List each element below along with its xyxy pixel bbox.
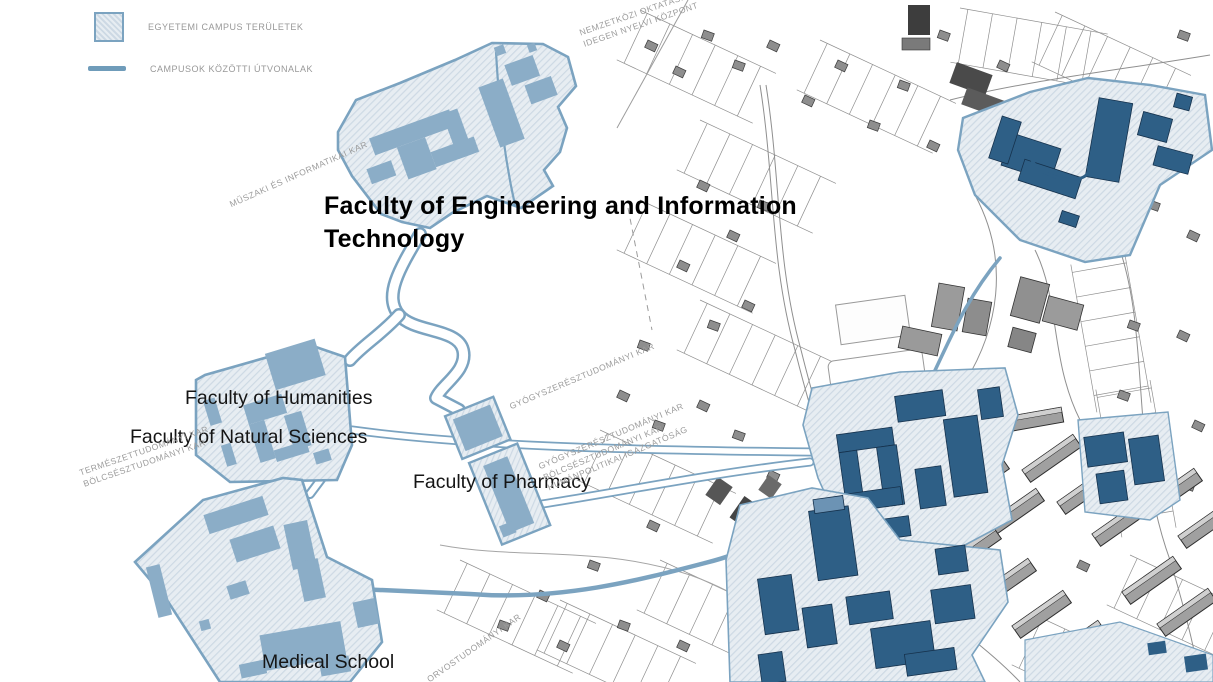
- legend-label: CAMPUSOK KÖZÖTTI ÚTVONALAK: [150, 64, 313, 74]
- campus-area-swatch: [94, 12, 124, 42]
- northeast-campus-area: [958, 78, 1212, 262]
- legend-item-campus-areas: EGYETEMI CAMPUS TERÜLETEK: [94, 12, 313, 42]
- campus-map-page: EGYETEMI CAMPUS TERÜLETEK CAMPUSOK KÖZÖT…: [0, 0, 1213, 682]
- humanities-natsci-campus-area: [195, 339, 352, 491]
- legend: EGYETEMI CAMPUS TERÜLETEK CAMPUSOK KÖZÖT…: [94, 12, 313, 96]
- campus-map: [0, 0, 1213, 682]
- southeast-campus-patch: [1025, 622, 1213, 682]
- label-faculty-engineering: Faculty of Engineering and Information T…: [324, 190, 829, 255]
- label-faculty-humanities: Faculty of Humanities: [185, 387, 373, 410]
- east-campus-block: [1078, 412, 1180, 520]
- route-line-swatch: [88, 66, 126, 71]
- legend-label: EGYETEMI CAMPUS TERÜLETEK: [148, 22, 303, 32]
- label-medical-school: Medical School: [262, 651, 394, 674]
- legend-item-routes: CAMPUSOK KÖZÖTTI ÚTVONALAK: [94, 56, 313, 82]
